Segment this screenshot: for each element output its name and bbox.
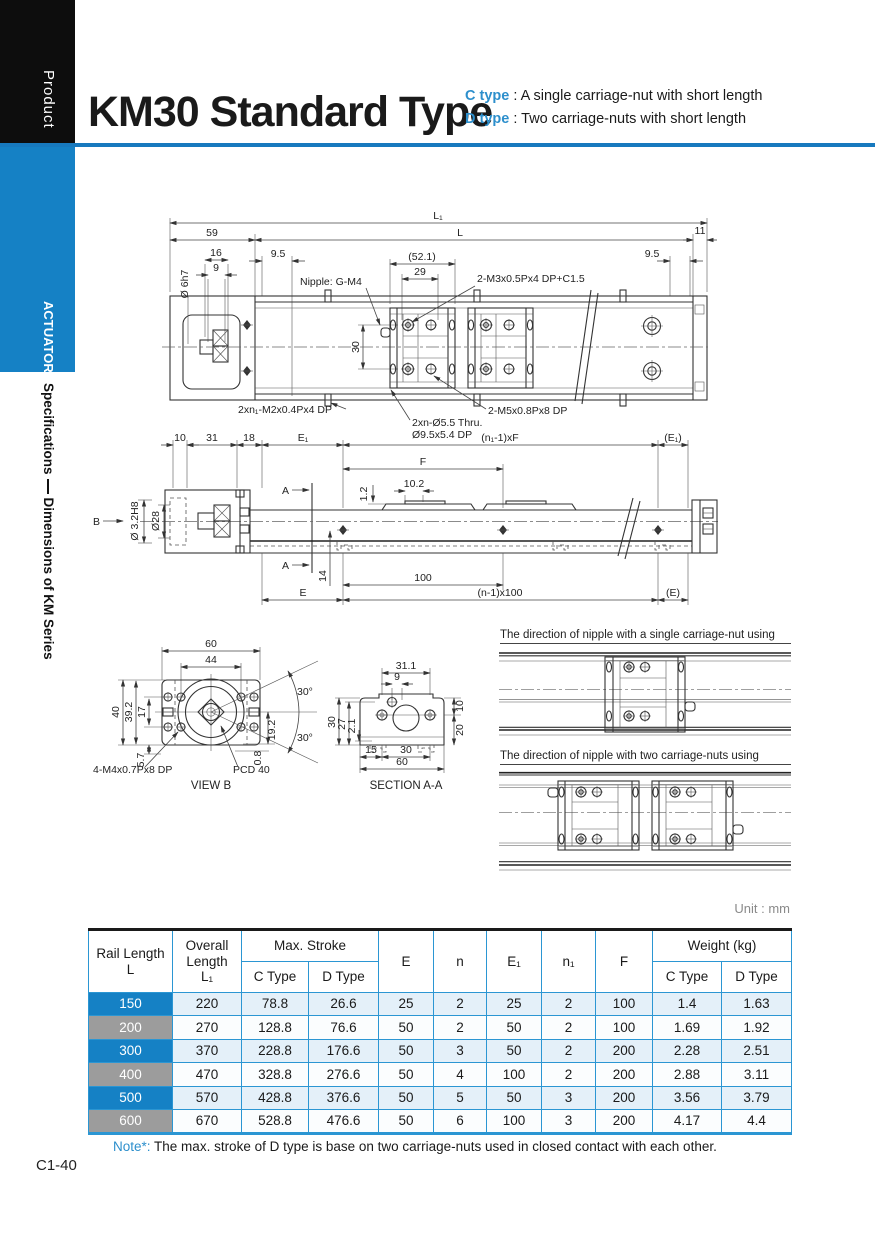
nipple-tab [685, 702, 695, 711]
label-m5: 2-M5x0.8Px8 DP [488, 405, 567, 417]
section-a-label-bottom: A [282, 560, 289, 572]
dim-label-40: 40 [110, 706, 122, 718]
dim-label-14: 14 [317, 570, 329, 582]
col-header-weight: Weight (kg) [653, 930, 792, 962]
rail-length-cell: 500 [89, 1086, 173, 1109]
col-header-weight-d: D Type [722, 962, 792, 993]
dim-label-59: 59 [206, 227, 218, 239]
sidebar-section-label: SpecificationsDimensions of KM Series [41, 383, 56, 613]
col-header-stroke-d: D Type [309, 962, 379, 993]
nipple-tab [381, 328, 390, 337]
view-b-drawing: 60 44 40 39.2 17 5.7 [85, 638, 335, 803]
dim-label-30-upper: 30° [297, 686, 313, 698]
dim-label-44: 44 [205, 654, 217, 666]
dim-label-e1p: (E₁) [664, 432, 682, 444]
dim-label-102: 10.2 [404, 478, 425, 490]
header-rule [0, 143, 875, 147]
col-header-rail-length: Rail LengthL [89, 930, 173, 993]
dim-label-30-lower: 30° [297, 732, 313, 744]
dim-label-392: 39.2 [123, 702, 135, 723]
dim-label-15: 15 [365, 744, 377, 756]
dim-label-e: E [299, 587, 306, 599]
col-header-f: F [596, 930, 653, 993]
dim-label-18: 18 [243, 432, 255, 444]
dim-label-d28: Ø28 [150, 511, 162, 531]
rail-length-cell: 200 [89, 1016, 173, 1039]
carriage-block-1 [381, 308, 455, 388]
label-m4: 4-M4x0.7Px8 DP [93, 764, 172, 776]
nipple-single-caption: The direction of nipple with a single ca… [500, 629, 791, 644]
dim-label-100: 100 [414, 572, 432, 584]
dim-label-ep: (E) [666, 587, 680, 599]
d-type-sep: : [509, 111, 521, 127]
col-header-stroke-c: C Type [242, 962, 309, 993]
dim-label-17: 17 [136, 706, 148, 718]
sidebar-section-part2: Dimensions of KM Series [41, 498, 56, 660]
page-number: C1-40 [36, 1157, 77, 1174]
dim-label-n1f: (n₁-1)xF [481, 432, 518, 444]
dim-label-16: 16 [210, 247, 222, 259]
nipple-single-diagram [499, 645, 791, 751]
col-header-n1: n₁ [542, 930, 596, 993]
note-text: The max. stroke of D type is base on two… [154, 1139, 717, 1154]
double-carriage-left [548, 781, 639, 850]
product-tab [0, 0, 75, 143]
dim-label-9: 9 [394, 671, 400, 683]
c-type-label: C type [465, 88, 509, 104]
col-header-e: E [379, 930, 434, 993]
dim-label-95l: 9.5 [271, 248, 286, 260]
rail-length-cell: 400 [89, 1063, 173, 1086]
dim-label-95r: 9.5 [645, 248, 660, 260]
dim-label-30b: 30 [400, 744, 412, 756]
c-type-line: C type : A single carriage-nut with shor… [465, 88, 762, 104]
table-row: 200 270128.876.6 50250 21001.691.92 [89, 1016, 792, 1039]
dim-label-60: 60 [205, 638, 217, 650]
nipple-tab [548, 788, 558, 797]
actuator-tab-label: ACTUATOR [41, 301, 56, 367]
dim-label-l: L [457, 227, 463, 239]
dim-label-29: 29 [414, 266, 426, 278]
single-carriage [605, 657, 695, 732]
label-m2: 2xn₁-M2x0.4Px4 DP [238, 404, 332, 416]
nipple-double-caption: The direction of nipple with two carriag… [500, 750, 791, 765]
table-row: 500 570428.8376.6 50550 32003.563.79 [89, 1086, 792, 1109]
d-type-label: D type [465, 111, 509, 127]
dim-label-11: 11 [695, 225, 706, 237]
note-line: Note*: The max. stroke of D type is base… [113, 1139, 717, 1154]
catalog-page: Product KM30 Standard Type C type : A si… [0, 0, 875, 1241]
nipple-tab [733, 825, 743, 834]
spec-table: Rail LengthL OverallLengthL₁ Max. Stroke… [88, 928, 792, 1135]
col-header-weight-c: C Type [653, 962, 722, 993]
label-m3: 2-M3x0.5Px4 DP+C1.5 [477, 273, 585, 285]
product-tab-label: Product [40, 70, 57, 142]
dim-label-9: 9 [213, 262, 219, 274]
view-b-arrow-label: B [93, 516, 100, 528]
top-view-drawing: L₁ L 59 11 16 9 Ø 6h7 9.5 (52.1) 29 30 [150, 204, 715, 442]
view-b-caption: VIEW B [191, 780, 232, 792]
dim-label-e1: E₁ [298, 432, 309, 444]
dim-label-f: F [420, 456, 426, 468]
c-type-desc: A single carriage-nut with short length [521, 88, 763, 104]
table-row: 300 370228.8176.6 50350 22002.282.51 [89, 1039, 792, 1062]
dim-label-12: 1.2 [358, 487, 370, 502]
rail-length-cell: 300 [89, 1039, 173, 1062]
sidebar-section-part1: Specifications [41, 383, 56, 475]
unit-label: Unit : mm [600, 901, 790, 916]
label-nipple: Nipple: G-M4 [300, 276, 362, 288]
dim-label-d6h7: Ø 6h7 [179, 270, 191, 299]
dim-label-10: 10 [174, 432, 186, 444]
table-row: 600 670528.8476.6 506100 32004.174.4 [89, 1109, 792, 1133]
dim-label-192: 19.2 [266, 720, 278, 741]
c-type-sep: : [509, 88, 520, 104]
dim-label-521: (52.1) [408, 251, 435, 263]
d-type-line: D type : Two carriage-nuts with short le… [465, 111, 746, 127]
dim-label-60: 60 [396, 756, 408, 768]
table-row: 150 22078.826.6 25225 21001.41.63 [89, 993, 792, 1016]
nipple-double-diagram [499, 764, 791, 876]
section-aa-caption: SECTION A-A [370, 780, 443, 792]
rail-length-cell: 150 [89, 993, 173, 1016]
label-pcd40: PCD 40 [233, 764, 270, 776]
dim-label-21: 2.1 [346, 719, 358, 734]
note-label: Note*: [113, 1139, 151, 1154]
d-type-desc: Two carriage-nuts with short length [521, 111, 746, 127]
col-header-overall-length: OverallLengthL₁ [173, 930, 242, 993]
rail-length-cell: 600 [89, 1109, 173, 1133]
sidebar-divider [47, 479, 49, 494]
actuator-tab [0, 147, 75, 372]
side-view-drawing: 10 31 18 E₁ (n₁-1)xF (E₁) F A A 1.2 10.2 [90, 428, 725, 613]
dim-label-l1: L₁ [433, 210, 443, 222]
col-header-e1: E₁ [487, 930, 542, 993]
dim-label-20: 20 [454, 724, 466, 736]
col-header-n: n [434, 930, 487, 993]
page-title: KM30 Standard Type [88, 88, 492, 137]
col-header-max-stroke: Max. Stroke [242, 930, 379, 962]
dim-label-31: 31 [206, 432, 218, 444]
section-a-label-top: A [282, 485, 289, 497]
double-carriage-right [652, 781, 743, 850]
carriage-block-2 [468, 308, 533, 388]
dim-label-d32h8: Ø 3.2H8 [129, 501, 141, 540]
dim-label-n100: (n-1)x100 [478, 587, 523, 599]
dim-label-10: 10 [454, 700, 466, 712]
table-row: 400 470328.8276.6 504100 22002.883.11 [89, 1063, 792, 1086]
section-aa-drawing: 31.1 9 30 27 2.1 10 20 15 30 [330, 638, 505, 803]
